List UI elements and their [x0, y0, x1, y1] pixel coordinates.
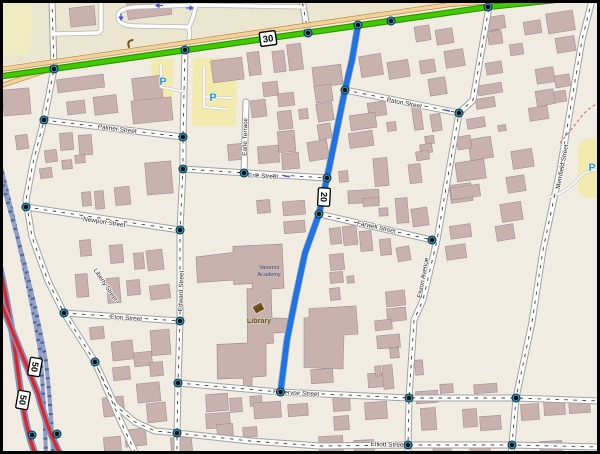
svg-text:Academy: Academy [257, 272, 281, 278]
svg-text:30: 30 [262, 33, 274, 45]
svg-text:P: P [209, 92, 216, 104]
svg-text:Library: Library [247, 316, 271, 325]
svg-text:Vanenni: Vanenni [259, 265, 279, 271]
svg-text:P: P [588, 162, 595, 174]
svg-text:20: 20 [319, 192, 330, 203]
svg-text:Edward Street: Edward Street [177, 270, 185, 311]
svg-text:P: P [159, 76, 166, 88]
svg-text:Elliott Street: Elliott Street [371, 441, 406, 449]
svg-text:Earle Terrace: Earle Terrace [242, 118, 250, 156]
svg-text:50: 50 [29, 361, 41, 373]
svg-text:50: 50 [17, 394, 29, 406]
